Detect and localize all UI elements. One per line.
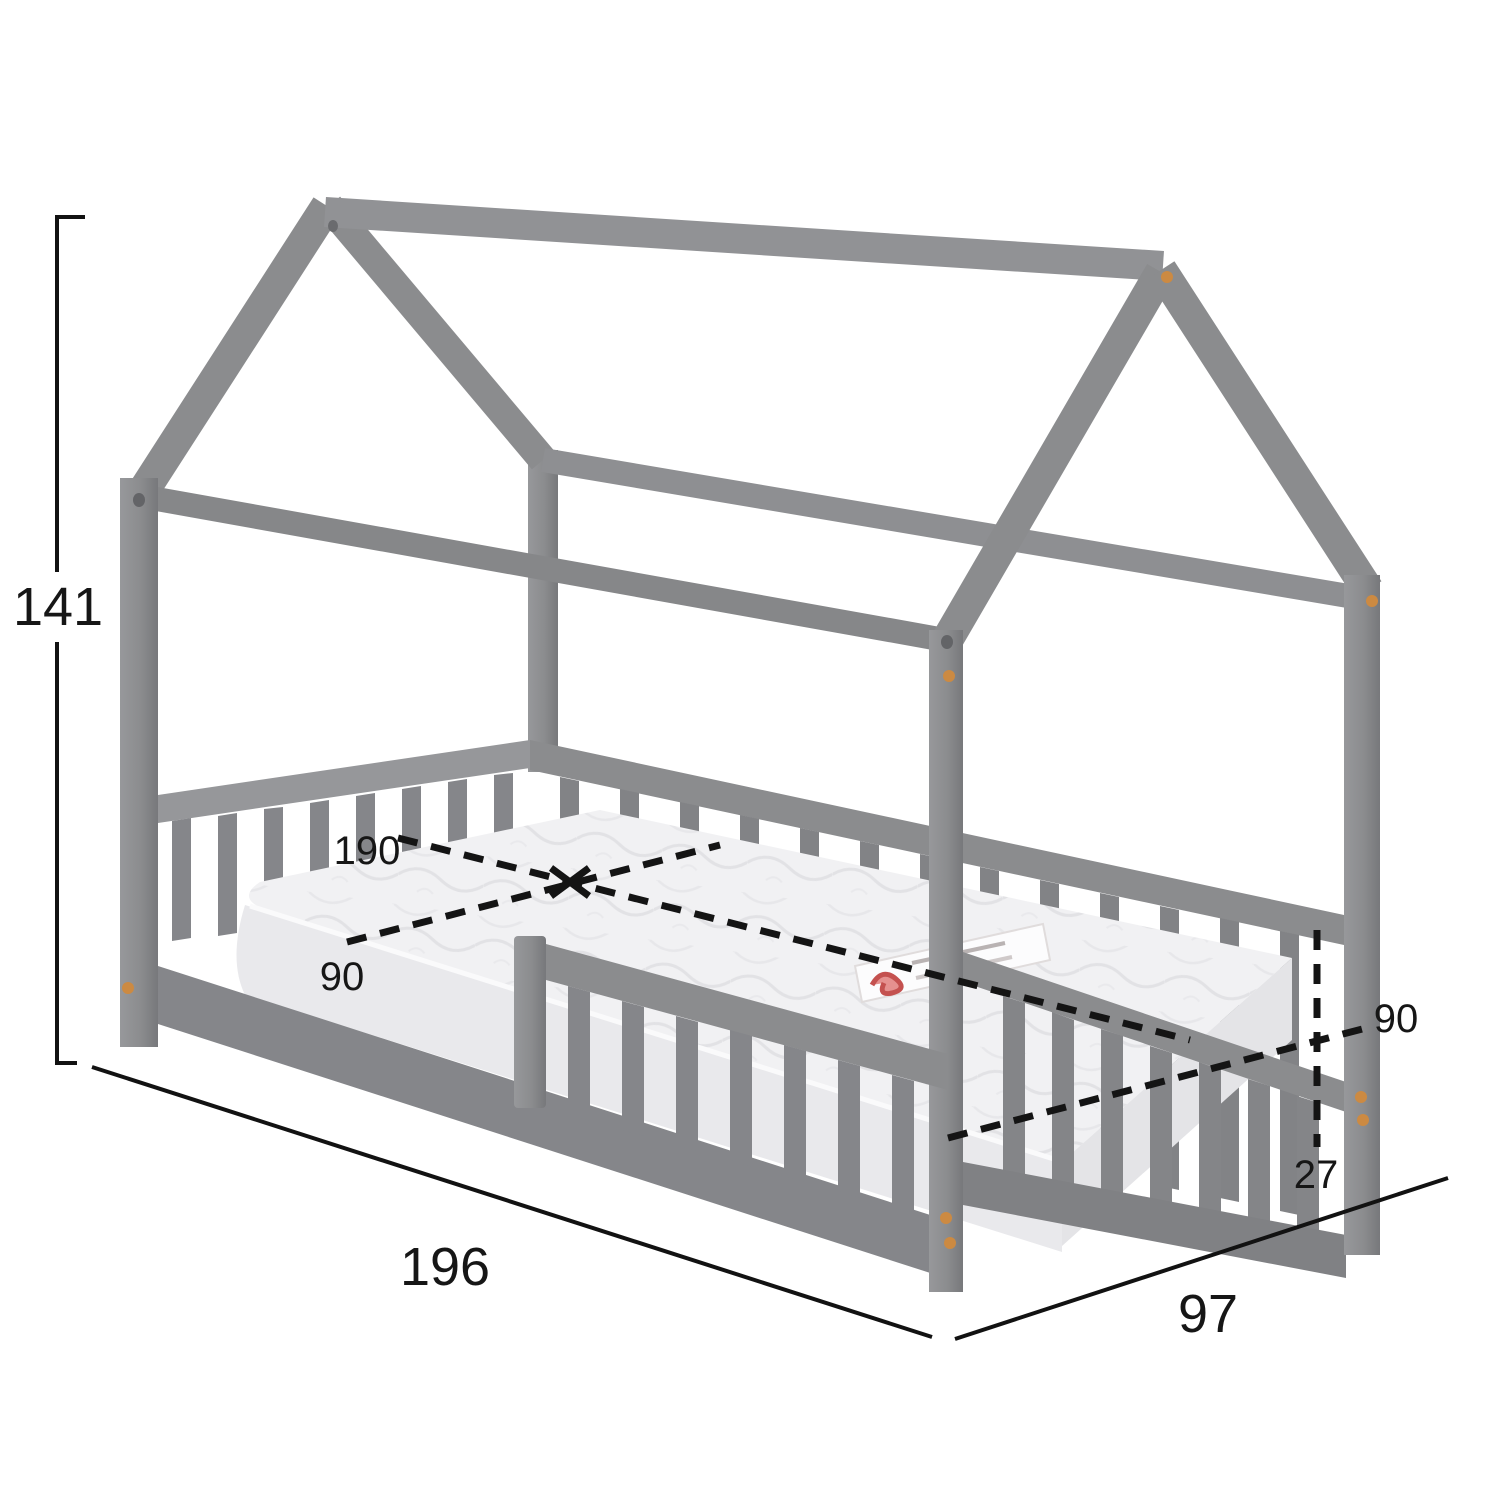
dowel-front-left-leg [122,982,134,994]
dowel-back-right-1 [1355,1091,1367,1103]
post-front-left [120,478,158,1047]
roof-left-gable-back-slope [329,206,543,460]
dowel-front-right-leg-1 [940,1212,952,1224]
dowel-back-right-2 [1357,1114,1369,1126]
guard-end-post [514,936,546,1108]
dim-mattress-width-label: 90 [320,955,365,999]
diagram-canvas: 141 196 97 190 90 90 27 [0,0,1499,1500]
dim-mattress-length-label: 190 [334,829,401,873]
dowel-hole-left-apex [328,220,338,232]
dim-width-label: 97 [1178,1284,1238,1344]
roof-ridge-beam [325,212,1163,266]
post-back-left [528,450,558,772]
head-fence-top-rail [158,740,530,823]
bed-dimension-diagram: 141 196 97 190 90 90 27 [0,0,1499,1500]
post-front-right [929,630,963,1292]
dowel-back-right-top [1366,595,1378,607]
roof-frame [139,206,1368,642]
dimension-rail-height: 27 [1294,930,1339,1197]
dowel-hole-front-right-top [941,635,953,649]
roof-left-gable-front-slope [139,206,327,498]
dim-inner-width-label: 90 [1374,997,1419,1041]
roof-back-eave-beam [543,460,1360,598]
house-frame [139,206,1368,772]
dim-height-label: 141 [13,577,103,637]
dowel-front-right-top [943,670,955,682]
dimension-height: 141 [13,217,103,1063]
roof-right-gable-front-slope [946,272,1161,642]
dowel-hole-front-left-top [133,493,145,507]
dowel-right-apex [1161,271,1173,283]
dowel-front-right-leg-2 [944,1237,956,1249]
dim-rail-height-label: 27 [1294,1153,1339,1197]
roof-right-gable-back-slope [1161,270,1368,590]
post-back-right [1344,575,1380,1255]
dim-length-label: 196 [400,1237,490,1297]
